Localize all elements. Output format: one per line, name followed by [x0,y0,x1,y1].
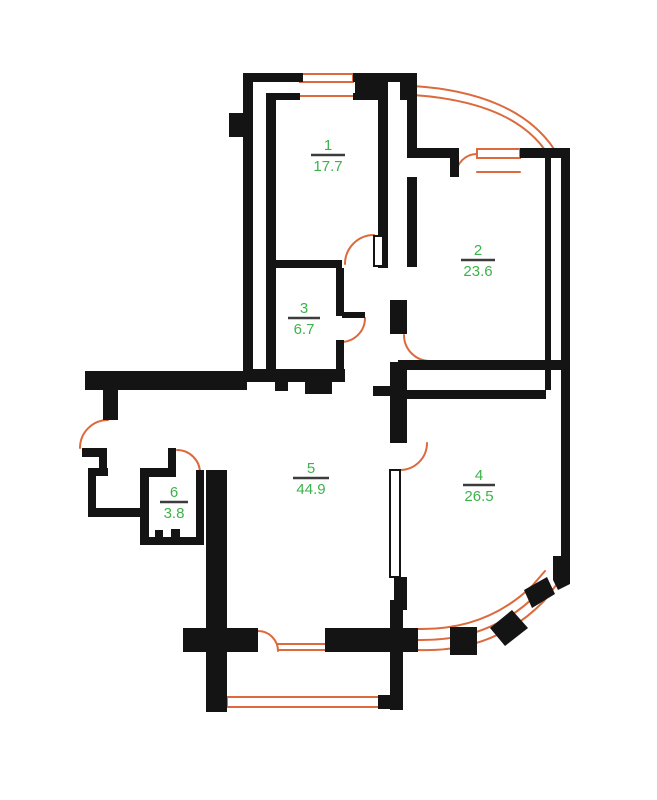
door-arc-balcony-bottom [258,631,278,651]
door-arc-room3 [341,318,365,342]
room-6-label: 6 3.8 [160,484,188,522]
room-2-area: 23.6 [463,263,492,280]
room-4-area: 26.5 [464,488,493,505]
room-3-area: 6.7 [294,321,315,338]
room-5-area: 44.9 [296,481,325,498]
room-1-area: 17.7 [313,158,342,175]
room-4-number: 4 [475,467,483,484]
room-2-label: 2 23.6 [461,242,495,280]
window-room2-top [477,149,520,158]
floor-plan-page: 1 17.7 2 23.6 3 6.7 4 26.5 5 44.9 6 3 [0,0,657,800]
window-balcony-bottom [227,697,380,707]
room-2-number: 2 [474,242,482,259]
room-4-label: 4 26.5 [463,467,495,505]
room-3-number: 3 [300,300,308,317]
window-room1 [300,74,353,82]
door-arc-room1 [345,235,374,264]
room-3-label: 3 6.7 [288,300,320,338]
partition-room4-room5 [390,470,400,577]
balcony-curve-outer [413,86,554,149]
door-arc-room2-balcony [456,154,477,175]
door-arc-entrance [80,420,108,448]
room-1-number: 1 [324,137,332,154]
bay-window-inner [418,571,545,629]
door-arc-room2 [404,335,430,361]
room-labels-layer: 1 17.7 2 23.6 3 6.7 4 26.5 5 44.9 6 3 [160,137,495,522]
room-6-area: 3.8 [164,505,185,522]
room-5-number: 5 [307,460,315,477]
floor-plan-drawing: 1 17.7 2 23.6 3 6.7 4 26.5 5 44.9 6 3 [0,0,657,800]
balcony-curve-inner [413,95,545,150]
door-leaf-room1 [374,236,383,266]
door-arc-room6 [177,450,200,473]
room-1-label: 1 17.7 [311,137,345,175]
room-6-number: 6 [170,484,178,501]
door-arc-room4 [400,443,427,470]
room-5-label: 5 44.9 [293,460,329,498]
